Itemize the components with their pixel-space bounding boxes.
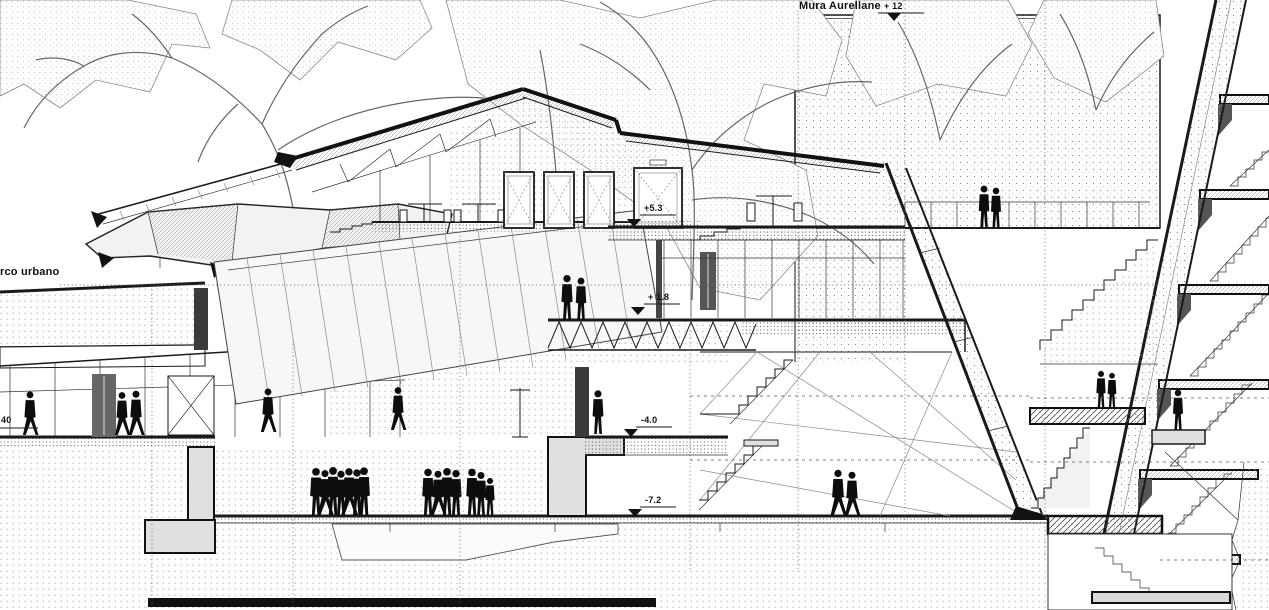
person-figure (1108, 373, 1117, 408)
elevation-mid-terrace: + 1.8 (648, 292, 669, 302)
elevation-gallery: -4.0 (641, 415, 657, 425)
door-x-wide (634, 160, 682, 228)
lower-grandstand-stair (1031, 428, 1090, 508)
basement (1048, 516, 1232, 610)
room-slab (585, 437, 728, 455)
braced-panel (168, 376, 214, 435)
person-figure (1096, 371, 1105, 408)
section-door (700, 252, 716, 310)
grandstand-stair (1040, 240, 1158, 364)
person-figure (845, 472, 861, 516)
person-figure (129, 391, 145, 435)
elevation-plaza: -7.2 (645, 495, 661, 505)
elevation-wall-top: + 12 (884, 1, 903, 11)
basement-slab (1092, 592, 1230, 603)
section-canvas (0, 0, 1269, 610)
roof-upstand (194, 288, 208, 350)
door-x (544, 172, 574, 228)
hall-stairs (699, 360, 793, 510)
person-figure (115, 392, 130, 435)
park-label: rco urbano (0, 266, 59, 278)
elevation-left-edge: 40 (1, 415, 11, 425)
ground-baseline (148, 598, 656, 607)
person-figure (593, 390, 604, 434)
wall-title-label: Mura Aurellane (799, 0, 881, 12)
gallery-floor (0, 437, 215, 447)
door-x (504, 172, 534, 228)
person-figure (1173, 390, 1183, 430)
elevation-upper-terrace: +5.3 (644, 203, 663, 213)
person-figure (830, 470, 847, 516)
room-pilaster (575, 367, 589, 437)
section-drawing: Mura Aurellane + 12 rco urbano +5.3 + 1.… (0, 0, 1269, 610)
